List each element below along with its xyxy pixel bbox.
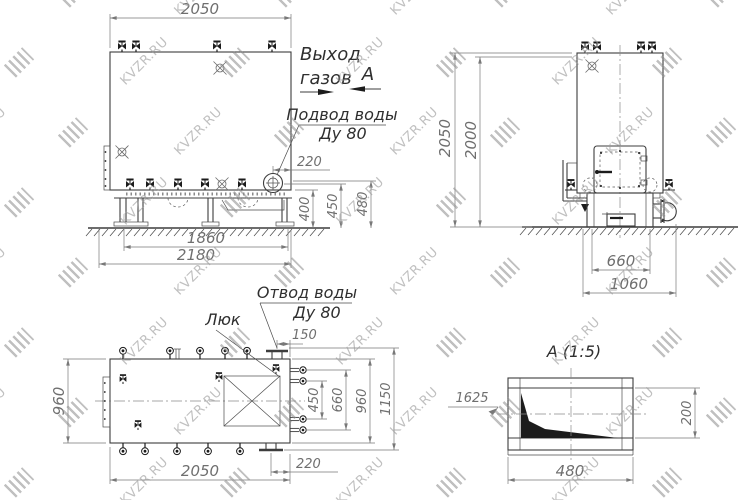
gas-outlet-label: Выход газов [300, 44, 361, 95]
wedge-profile [521, 393, 618, 438]
plan-top-valves [120, 347, 251, 359]
plan-right-stubs [290, 367, 306, 433]
ash-door [607, 214, 635, 226]
side-view: 2050 2000 660 1060 [436, 43, 738, 298]
side-flange-stub [653, 199, 676, 223]
dim-plan-150: 150 [277, 328, 317, 357]
side-top-valves [581, 43, 656, 54]
label-water-out-1: Отвод воды [257, 283, 357, 302]
drawing-canvas: 2050 220 400 450 480 1860 [0, 0, 750, 500]
dim-label: 2180 [177, 246, 215, 264]
plan-view: 960 150 450 660 960 [50, 283, 399, 484]
dim-label: 660 [331, 388, 346, 413]
dim-side-660: 660 [592, 229, 650, 274]
plan-bottom-flange [259, 443, 283, 450]
dim-label: 960 [50, 387, 68, 416]
dim-side-2000: 2000 [462, 57, 572, 227]
section-letter: А [361, 64, 374, 85]
target-mark [586, 60, 599, 73]
front-side-hatch [104, 146, 110, 190]
dim-label: 2050 [181, 0, 219, 18]
dim-label: 450 [307, 388, 322, 413]
dim-plan-2050: 2050 [110, 447, 290, 484]
label-water-in-1: Подвод воды [286, 105, 397, 124]
water-inlet-label: Подвод воды Ду 80 [277, 105, 398, 175]
note-arrow [489, 409, 497, 416]
front-view: 2050 220 400 450 480 1860 [86, 0, 398, 268]
dim-label: 450 [326, 194, 341, 219]
water-inlet-flange [264, 174, 283, 193]
support-frame-front [114, 194, 294, 226]
dim-label: 400 [298, 197, 313, 222]
dim-front-450: 450 [284, 184, 346, 228]
hatch-label: Люк [204, 310, 280, 377]
target-mark [214, 62, 227, 75]
label-hatch: Люк [204, 310, 241, 329]
dim-label: 2050 [436, 119, 454, 157]
dim-label: 150 [292, 328, 317, 343]
section-note: 1625 [448, 391, 498, 415]
water-outlet-flange [266, 351, 288, 359]
front-bottom-valves [126, 180, 246, 191]
dim-label: 2000 [462, 121, 480, 159]
section-title: А (1:5) [546, 342, 601, 361]
dim-front-400: 400 [295, 190, 318, 228]
dim-label: 960 [355, 389, 370, 414]
dim-label: 1060 [610, 275, 648, 293]
technical-drawing: 2050 220 400 450 480 1860 [0, 0, 750, 500]
dim-section-480: 480 [508, 457, 633, 484]
dim-label: 480 [556, 462, 585, 480]
label-gas-1: Выход [300, 44, 361, 65]
dim-label: 660 [607, 252, 636, 270]
dim-side-2050: 2050 [436, 53, 572, 227]
section-cut-mark: А [349, 64, 381, 92]
dim-label: 2050 [181, 462, 219, 480]
dim-label: 1860 [187, 229, 225, 247]
dim-label: 480 [356, 192, 371, 217]
target-mark [116, 146, 129, 159]
furnace-door [594, 146, 647, 193]
label-water-in-2: Ду 80 [318, 124, 366, 143]
dim-label: 200 [680, 401, 695, 426]
dim-label: 220 [296, 457, 321, 472]
target-mark [216, 178, 229, 191]
dim-plan-450: 450 [307, 381, 327, 419]
drain-pipe [563, 160, 589, 212]
section-view: А (1:5) 200 480 1625 [448, 342, 700, 484]
note-label: 1625 [455, 391, 488, 406]
plan-side-hatch [103, 377, 110, 427]
dim-label: 220 [297, 155, 322, 170]
boiler-body-front [110, 52, 291, 190]
ground-hatch-side [520, 228, 734, 235]
gas-direction-arrow [318, 89, 334, 95]
label-gas-2: газов [300, 68, 352, 89]
front-top-valves [118, 42, 276, 53]
plan-bottom-valves [120, 443, 244, 455]
dim-label: 1150 [379, 382, 394, 415]
label-water-out-2: Ду 80 [292, 303, 340, 322]
dim-plan-220: 220 [271, 453, 338, 476]
dim-section-200: 200 [635, 388, 700, 438]
